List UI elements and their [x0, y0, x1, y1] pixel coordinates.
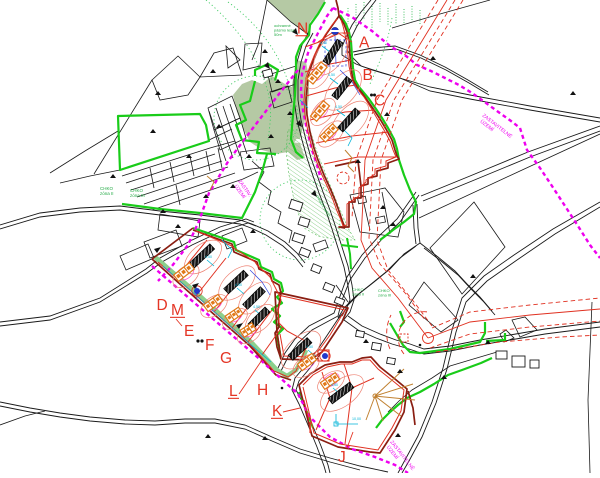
svg-text:M: M	[171, 302, 184, 319]
svg-text:A: A	[359, 35, 370, 52]
svg-text:10,00: 10,00	[352, 417, 361, 421]
svg-text:zóna II: zóna II	[352, 292, 364, 297]
svg-text:4,50: 4,50	[253, 305, 260, 309]
svg-text:F: F	[205, 337, 214, 354]
svg-text:G: G	[220, 350, 232, 367]
svg-text:4,50: 4,50	[320, 41, 327, 45]
svg-text:zóna III: zóna III	[378, 293, 391, 298]
svg-text:C: C	[374, 93, 385, 110]
svg-text:4,50: 4,50	[306, 345, 313, 349]
svg-text:L: L	[229, 383, 238, 400]
svg-text:E: E	[184, 323, 194, 340]
svg-text:K: K	[272, 403, 283, 420]
svg-text:4,50: 4,50	[235, 283, 242, 287]
svg-text:I: I	[308, 420, 312, 437]
svg-text:H: H	[257, 382, 268, 399]
svg-text:4,50: 4,50	[205, 255, 212, 259]
svg-text:4,50: 4,50	[331, 383, 338, 387]
svg-text:D: D	[157, 297, 168, 314]
svg-text:4,50: 4,50	[335, 105, 342, 109]
svg-text:B: B	[363, 67, 373, 84]
svg-text:zóna II: zóna II	[100, 191, 114, 196]
svg-text:4,50: 4,50	[328, 73, 335, 77]
svg-text:N: N	[297, 21, 308, 38]
svg-text:J: J	[338, 449, 346, 466]
svg-text:zóna III: zóna III	[130, 193, 145, 198]
svg-text:50m: 50m	[274, 32, 282, 37]
